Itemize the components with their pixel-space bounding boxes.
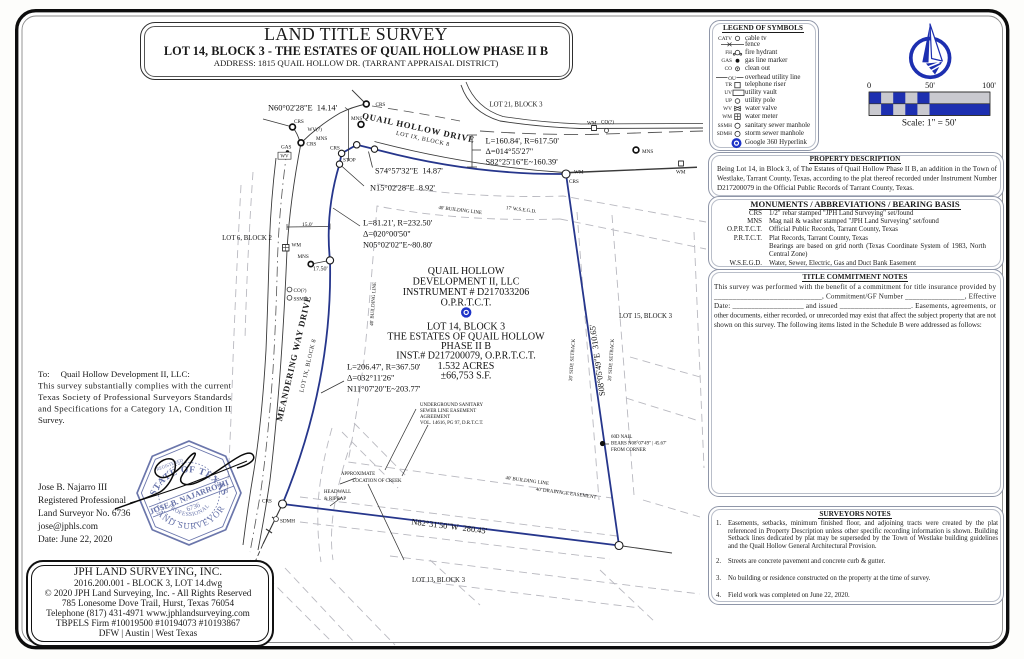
svg-text:Texas Society of Professional: Texas Society of Professional Surveyors … — [38, 392, 232, 402]
svg-text:To: Quail Hollow Developme: To: Quail Hollow Development II, LLC: — [38, 369, 190, 379]
svg-text:Westlake, Tarrant County, Texa: Westlake, Tarrant County, Texas, accordi… — [717, 175, 998, 183]
svg-text:Date: ___________________ and: Date: ___________________ and issued ___… — [714, 302, 997, 310]
svg-text:shown on this survey. The foll: shown on this survey. The following item… — [714, 321, 982, 329]
svg-text:_____________________________,: _____________________________, Commitmen… — [713, 293, 996, 301]
svg-text:and Specifications for a Categ: and Specifications for a Category 1A, Co… — [38, 404, 231, 414]
svg-text:Survey.: Survey. — [38, 415, 65, 425]
svg-text:D217200079 in the Official Pub: D217200079 in the Official Public Record… — [717, 184, 914, 192]
svg-text:Being Lot 14, in Block 3, of T: Being Lot 14, in Block 3, of The Estates… — [717, 165, 998, 173]
svg-text:other documents, either record: other documents, either recorded, or unr… — [714, 312, 996, 320]
svg-text:OU: OU — [728, 76, 736, 82]
svg-text:This survey was performed with: This survey was performed with the benef… — [714, 283, 996, 291]
svg-text:This survey substantially comp: This survey substantially complies with … — [38, 381, 232, 391]
